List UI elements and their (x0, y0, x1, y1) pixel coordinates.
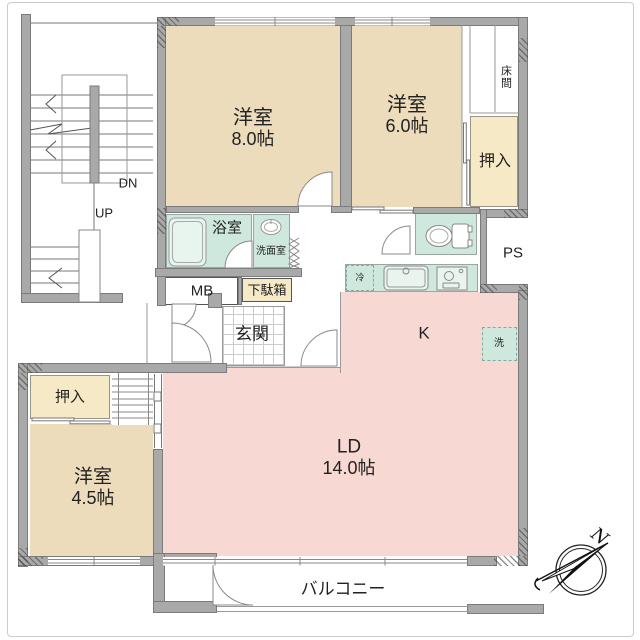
floor-plan: N 洋室 8.0帖 洋室 6.0帖 床間 押入 浴室 洗面室 MB 下駄箱 玄関… (0, 0, 640, 640)
room-western-45-size: 4.5帖 (71, 489, 114, 507)
washbasin-icon (261, 220, 281, 235)
washer-label: 洗 (494, 339, 504, 349)
lower-stair-lines (112, 373, 153, 425)
door-arcs (172, 172, 410, 605)
room-western-8-label: 洋室 (233, 108, 273, 128)
bathroom-label: 浴室 (212, 221, 242, 236)
washroom-label: 洗面室 (256, 247, 286, 257)
living-dining-label: LD (337, 438, 361, 457)
entrance-label: 玄関 (235, 326, 269, 343)
stairs-up-label: UP (95, 207, 113, 220)
bathtub-icon (169, 218, 206, 266)
accordion-door-icon (289, 238, 299, 268)
stove-icon (437, 267, 467, 290)
room-western-8-size: 8.0帖 (231, 130, 274, 148)
floorplan-linework: N (0, 0, 640, 640)
kitchen-sink-icon (384, 266, 428, 290)
closet-right-label: 押入 (479, 154, 511, 170)
meter-box-label: MB (191, 284, 214, 299)
shoe-cabinet-label: 下駄箱 (247, 284, 286, 297)
pipe-space-label: PS (503, 246, 523, 261)
compass-icon: N (535, 523, 613, 595)
room-western-45-label: 洋室 (74, 468, 112, 487)
closet-left-label: 押入 (55, 390, 85, 405)
tokonoma-label: 床間 (500, 65, 511, 89)
living-dining-size: 14.0帖 (322, 459, 375, 477)
room-western-6-size: 6.0帖 (385, 117, 428, 135)
stair-divider-wall (90, 86, 99, 183)
fridge-label: 冷 (355, 274, 364, 283)
kitchen-label: K (418, 325, 429, 342)
toilet-icon (426, 224, 472, 248)
room-western-6-label: 洋室 (387, 95, 427, 115)
balcony-label: バルコニー (301, 581, 386, 598)
stairs-down-label: DN (119, 177, 138, 190)
stairs-icon (30, 23, 157, 363)
